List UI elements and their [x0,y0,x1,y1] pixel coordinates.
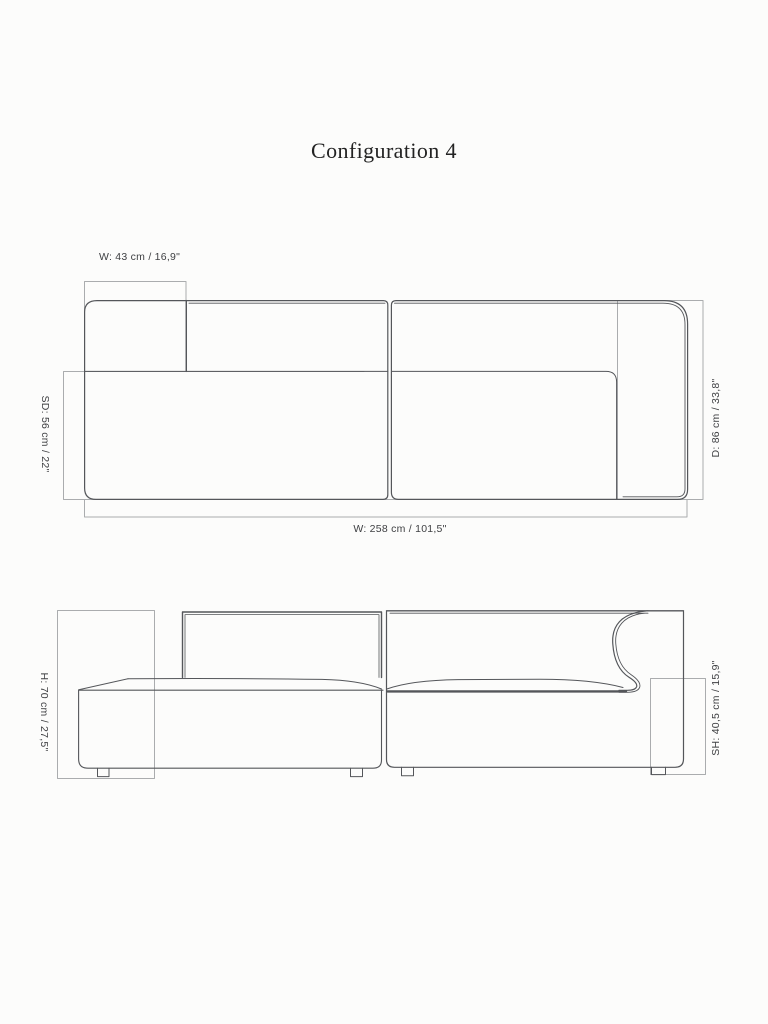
dim-box-height [58,611,155,779]
spec-sheet-page: Configuration 4 [0,0,768,1024]
plan-view-drawing [64,282,704,518]
front-armrest-curve-inner [390,613,648,692]
front-backrest [183,612,382,678]
dim-label-depth: D: 86 cm / 33,8" [710,379,722,458]
dim-label-total-width: W: 258 cm / 101,5" [353,523,446,535]
front-view-drawing [58,611,706,779]
dim-label-seat-depth: SD: 56 cm / 22" [39,396,51,473]
dim-box-seat-depth [64,372,365,500]
dim-label-height: H: 70 cm / 27,5" [38,673,50,752]
front-seat-side-edge [79,679,128,690]
front-seat-back-edge-right [387,679,623,689]
front-leg [98,768,110,776]
technical-drawing [0,0,768,1024]
front-seat-back-edge-left [128,679,382,689]
front-left-module [79,612,383,777]
plan-dimension-lines [64,282,704,518]
front-armrest-curve-outer [613,611,648,691]
front-leg [351,768,363,776]
dim-box-total-width [85,500,688,518]
dim-label-seat-height: SH: 40,5 cm / 15,9" [710,660,722,755]
plan-right-module [391,301,687,500]
front-leg [652,767,666,774]
plan-corner-seat-line [391,371,616,499]
plan-back-seam-right [395,303,686,497]
front-leg [402,767,414,776]
dim-box-module-width [85,282,187,372]
dim-label-module-width: W: 43 cm / 16,9" [99,251,180,263]
plan-left-module [85,301,388,500]
dim-box-seat-height [651,679,706,775]
dim-box-depth [618,301,704,500]
front-plinth-left [79,690,382,768]
front-body-right [387,612,684,768]
front-right-module [387,611,684,776]
front-backrest-seam [185,615,379,678]
